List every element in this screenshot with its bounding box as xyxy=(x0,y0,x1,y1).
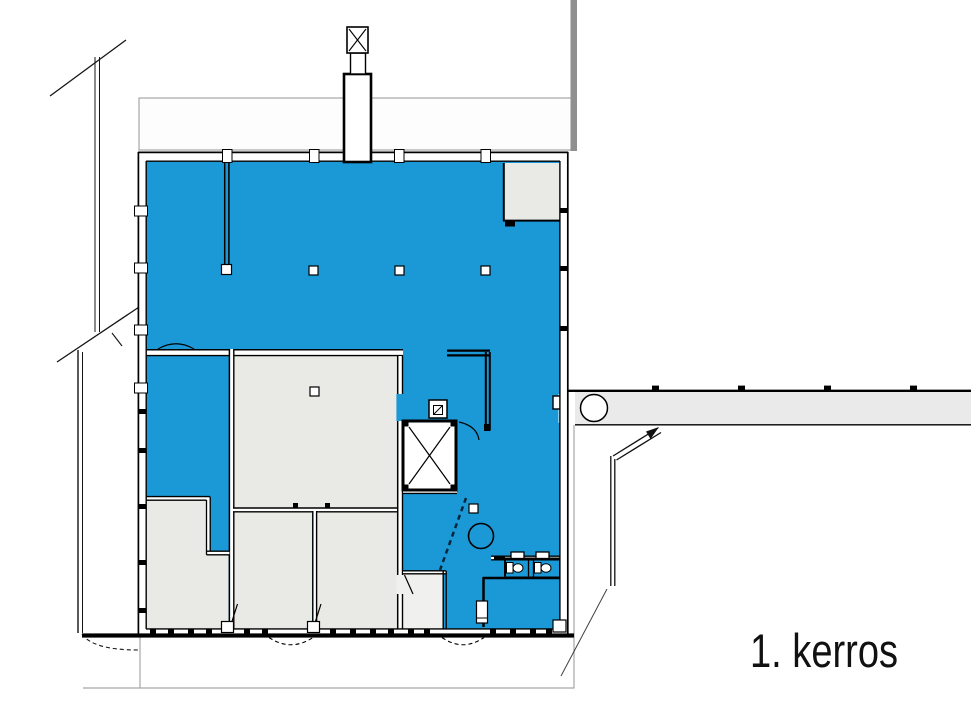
toilet xyxy=(535,563,542,574)
column xyxy=(481,266,490,275)
column xyxy=(469,504,478,513)
bottom-wall-ticks xyxy=(150,630,552,635)
corridor-walkway xyxy=(568,386,971,425)
toilet-bowl xyxy=(513,564,523,573)
cistern xyxy=(511,552,524,559)
bottom-wall-thick xyxy=(82,633,574,637)
floor-label: 1. kerros xyxy=(750,624,898,677)
toilet xyxy=(507,563,514,574)
elevator-shaft xyxy=(403,421,457,491)
door-tick xyxy=(505,222,515,227)
chimney-shaft xyxy=(344,27,371,162)
section-diagonal-top xyxy=(50,40,126,96)
room-c xyxy=(317,511,397,629)
room-top-right xyxy=(503,163,560,227)
column xyxy=(395,266,404,275)
corridor-floor xyxy=(575,392,971,425)
entrance-door-arc xyxy=(442,638,484,645)
site-wall-bar xyxy=(571,0,578,151)
shaft-symbol xyxy=(429,400,447,418)
room-central xyxy=(233,356,397,508)
floor-plan-page: 1. kerros xyxy=(0,0,971,726)
room-b xyxy=(233,511,312,629)
cistern xyxy=(536,552,549,559)
sink-fixture xyxy=(477,601,488,623)
corridor-column-circle xyxy=(581,395,608,422)
column xyxy=(310,387,319,396)
shaft-body xyxy=(344,74,371,162)
column xyxy=(222,265,232,275)
room-d xyxy=(403,573,443,629)
door-opening xyxy=(396,575,403,594)
section-arrow-tick xyxy=(112,333,122,346)
toilet-bowl xyxy=(541,564,551,573)
floor-plan-drawing: 1. kerros xyxy=(0,0,971,726)
entrance-door-arc xyxy=(269,638,313,645)
shaft-neck xyxy=(351,53,366,74)
ramp-wall xyxy=(561,427,661,676)
column xyxy=(309,266,318,275)
door-opening xyxy=(396,394,403,421)
